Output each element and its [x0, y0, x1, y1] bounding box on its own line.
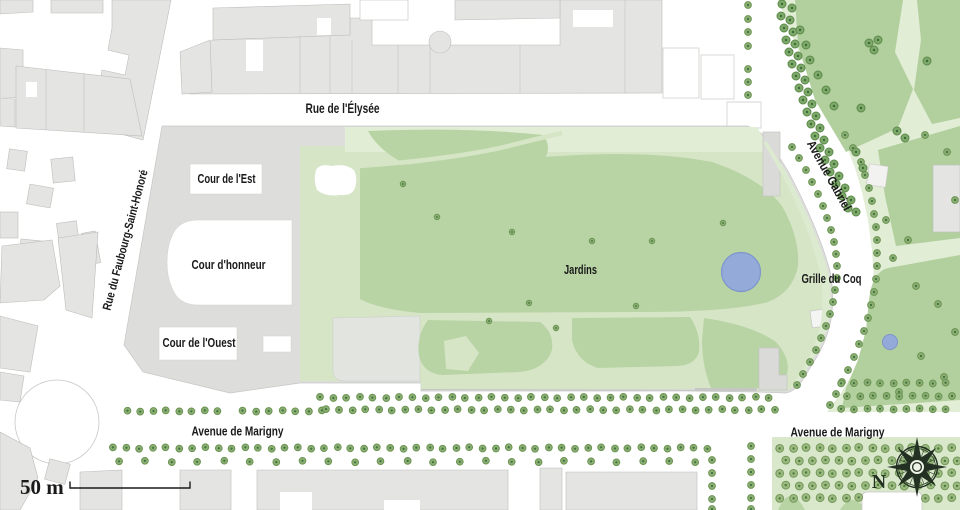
svg-text:50 m: 50 m — [20, 475, 64, 499]
svg-text:Avenue de Marigny: Avenue de Marigny — [791, 425, 886, 440]
svg-text:Grille du Coq: Grille du Coq — [802, 272, 862, 286]
svg-text:Jardins: Jardins — [564, 262, 597, 277]
svg-text:Cour d'honneur: Cour d'honneur — [192, 257, 266, 272]
svg-text:Avenue de Marigny: Avenue de Marigny — [192, 424, 285, 439]
svg-text:Cour de l'Ouest: Cour de l'Ouest — [163, 335, 236, 350]
svg-text:N: N — [872, 471, 887, 493]
svg-text:Cour de l'Est: Cour de l'Est — [198, 171, 256, 186]
svg-text:Rue de l'Élysée: Rue de l'Élysée — [306, 101, 380, 116]
